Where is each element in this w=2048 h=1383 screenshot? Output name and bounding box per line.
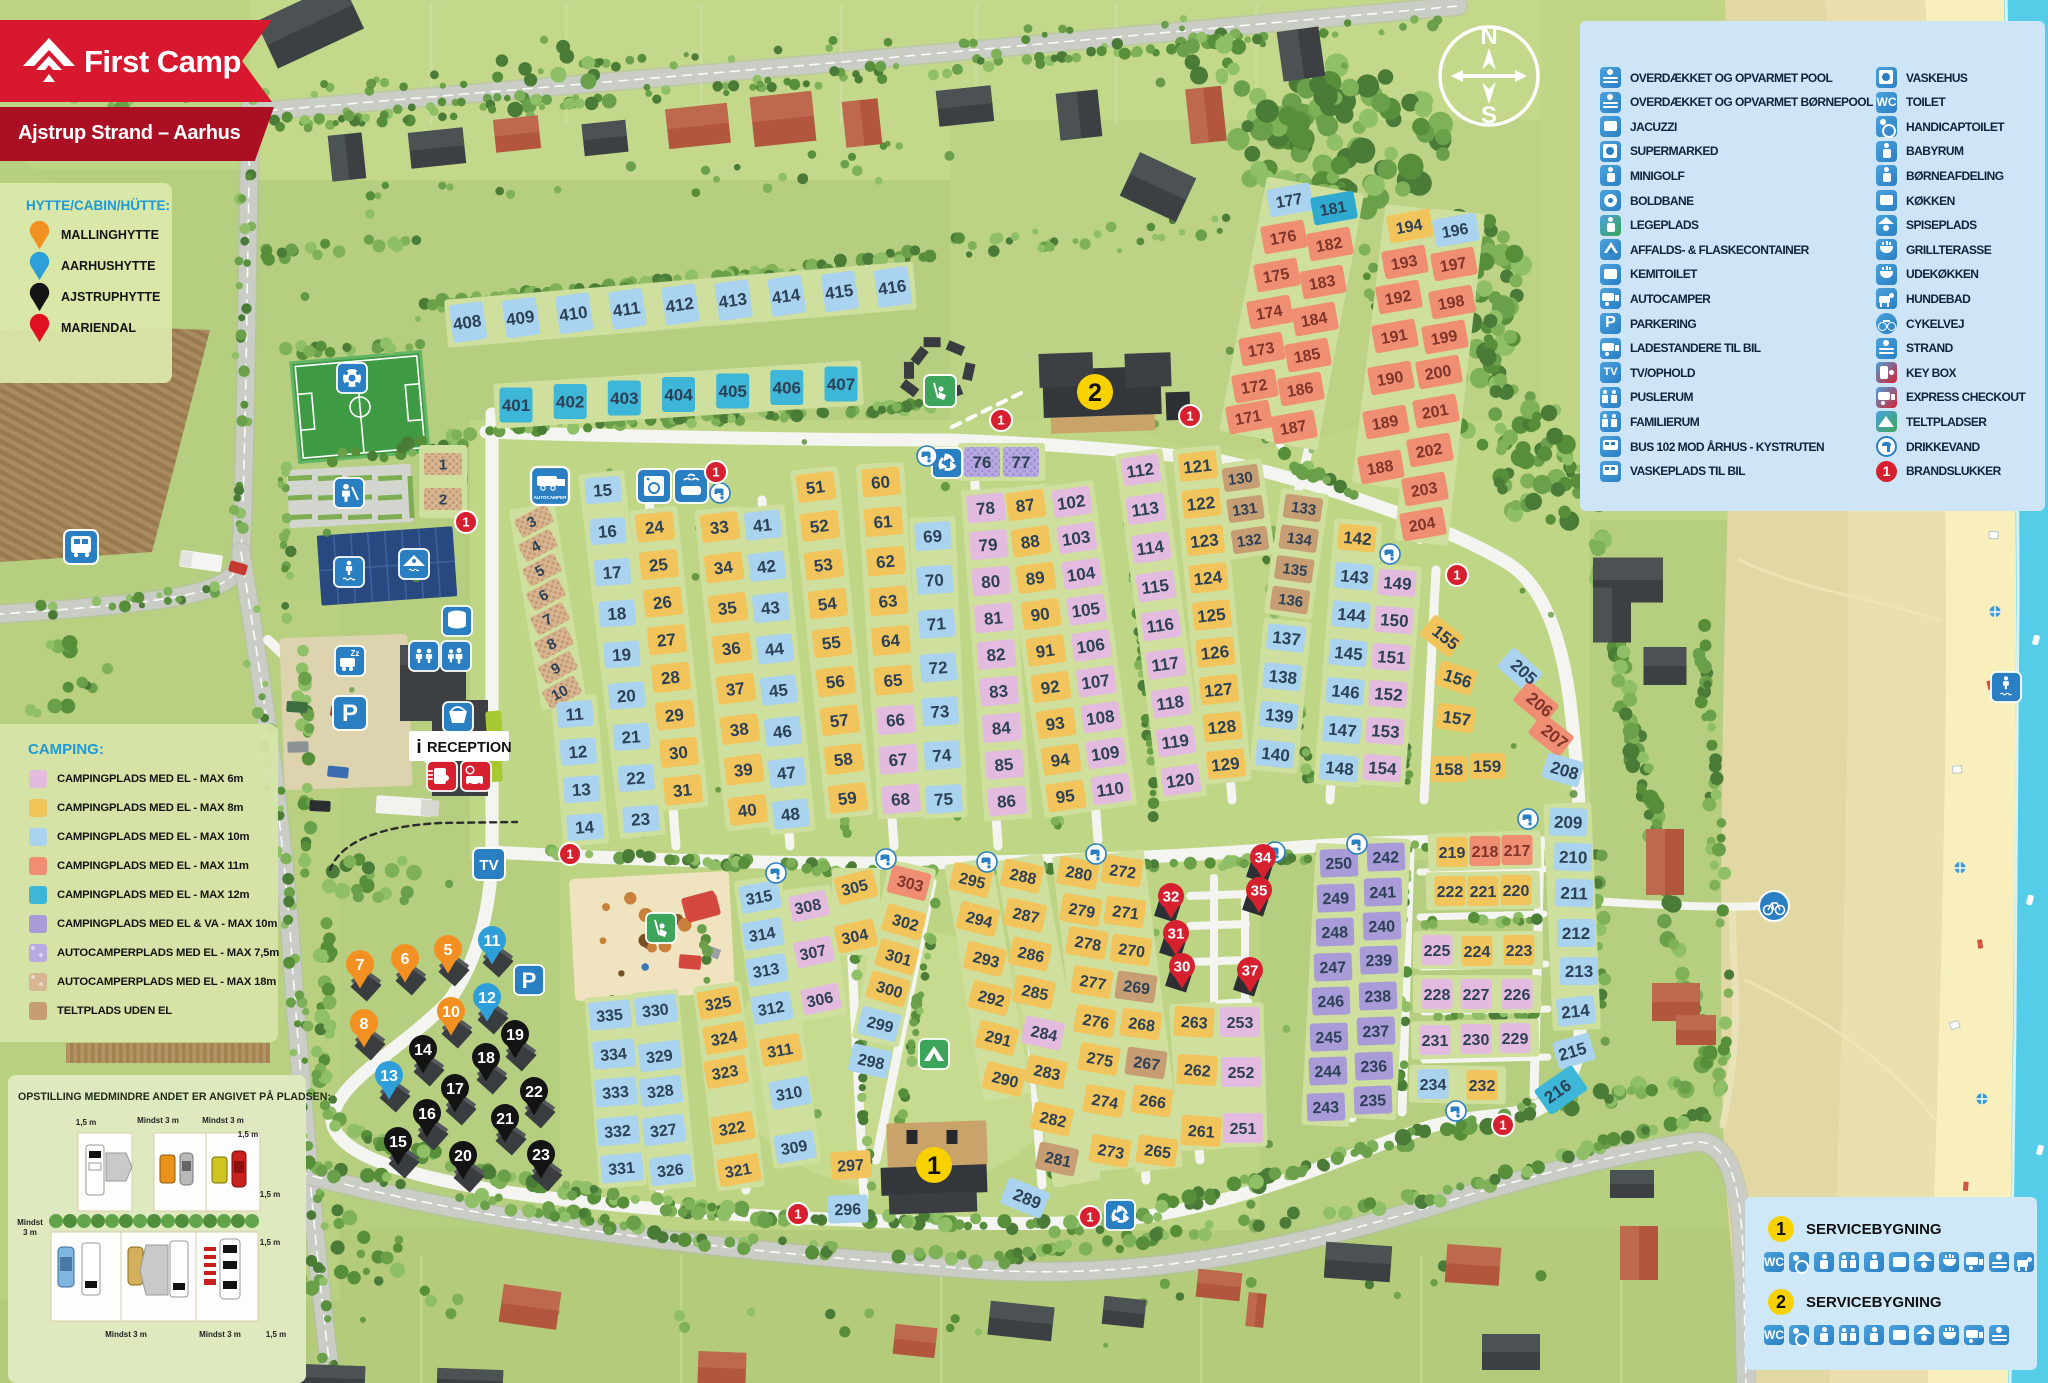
svg-text:52: 52: [809, 516, 830, 537]
svg-text:121: 121: [1182, 456, 1212, 478]
svg-text:137: 137: [1271, 628, 1301, 650]
svg-text:244: 244: [1314, 1063, 1341, 1081]
svg-text:238: 238: [1364, 988, 1391, 1006]
svg-text:413: 413: [717, 289, 748, 312]
svg-text:214: 214: [1560, 1001, 1591, 1023]
svg-text:132: 132: [1236, 531, 1263, 551]
svg-text:234: 234: [1420, 1077, 1447, 1094]
svg-text:Zz: Zz: [351, 649, 360, 658]
svg-text:40: 40: [737, 800, 758, 821]
svg-text:326: 326: [656, 1161, 685, 1181]
svg-text:Mindst 3 m: Mindst 3 m: [137, 1116, 179, 1125]
svg-text:19: 19: [612, 645, 632, 665]
svg-text:74: 74: [932, 746, 953, 766]
svg-text:1: 1: [927, 1152, 941, 1180]
svg-text:53: 53: [813, 555, 834, 576]
svg-text:250: 250: [1325, 855, 1352, 873]
svg-text:76: 76: [973, 453, 992, 472]
svg-text:54: 54: [817, 594, 839, 615]
svg-text:332: 332: [604, 1123, 632, 1142]
svg-text:29: 29: [664, 705, 685, 726]
svg-text:403: 403: [610, 389, 638, 408]
svg-text:261: 261: [1187, 1123, 1215, 1142]
svg-text:253: 253: [1227, 1015, 1254, 1032]
svg-text:59: 59: [837, 788, 858, 809]
svg-text:34: 34: [1255, 849, 1272, 866]
svg-text:1: 1: [794, 1207, 801, 1222]
svg-text:1: 1: [1499, 1118, 1506, 1133]
svg-text:42: 42: [756, 556, 777, 577]
svg-text:212: 212: [1562, 924, 1590, 943]
svg-text:57: 57: [829, 710, 850, 731]
svg-text:114: 114: [1135, 537, 1165, 560]
svg-text:239: 239: [1365, 952, 1392, 970]
svg-text:123: 123: [1189, 530, 1219, 552]
svg-text:116: 116: [1145, 614, 1175, 637]
svg-text:12: 12: [478, 990, 496, 1007]
svg-text:30: 30: [1174, 958, 1191, 975]
svg-text:252: 252: [1228, 1065, 1255, 1082]
svg-text:408: 408: [452, 311, 483, 334]
svg-text:81: 81: [983, 608, 1004, 629]
svg-text:1: 1: [997, 413, 1004, 428]
svg-text:44: 44: [764, 639, 785, 660]
svg-text:146: 146: [1331, 681, 1361, 702]
svg-text:Mindst: Mindst: [17, 1218, 43, 1227]
svg-text:16: 16: [418, 1106, 436, 1123]
svg-text:Mindst 3 m: Mindst 3 m: [199, 1330, 241, 1339]
svg-text:217: 217: [1504, 843, 1531, 860]
svg-text:126: 126: [1200, 642, 1230, 664]
svg-text:82: 82: [986, 645, 1007, 666]
svg-text:224: 224: [1464, 944, 1491, 961]
svg-text:225: 225: [1424, 943, 1451, 960]
svg-text:28: 28: [660, 667, 681, 688]
svg-text:251: 251: [1230, 1121, 1257, 1138]
svg-text:23: 23: [631, 809, 651, 829]
svg-text:240: 240: [1368, 918, 1395, 936]
svg-text:245: 245: [1315, 1029, 1342, 1047]
svg-text:12: 12: [568, 742, 588, 762]
svg-text:87: 87: [1015, 495, 1036, 516]
svg-text:93: 93: [1045, 713, 1066, 734]
svg-text:43: 43: [760, 598, 781, 619]
svg-text:333: 333: [602, 1084, 630, 1103]
svg-text:15: 15: [389, 1134, 407, 1151]
svg-text:1: 1: [439, 456, 447, 473]
svg-text:86: 86: [996, 791, 1017, 812]
svg-text:10: 10: [442, 1004, 460, 1021]
svg-text:415: 415: [824, 281, 855, 304]
svg-text:1: 1: [1453, 568, 1460, 583]
svg-text:AUTOCAMPER: AUTOCAMPER: [534, 495, 568, 500]
svg-text:95: 95: [1055, 786, 1076, 807]
svg-text:67: 67: [888, 750, 909, 771]
svg-text:37: 37: [725, 679, 746, 700]
svg-text:228: 228: [1424, 987, 1451, 1004]
svg-text:34: 34: [713, 557, 735, 578]
svg-text:235: 235: [1359, 1092, 1386, 1110]
svg-text:131: 131: [1231, 500, 1258, 520]
svg-text:33: 33: [709, 517, 730, 538]
svg-text:109: 109: [1090, 742, 1121, 765]
svg-text:21: 21: [496, 1111, 514, 1128]
svg-text:N: N: [1480, 23, 1497, 50]
svg-text:106: 106: [1075, 635, 1106, 658]
svg-text:Mindst 3 m: Mindst 3 m: [105, 1330, 147, 1339]
svg-text:149: 149: [1383, 573, 1413, 594]
svg-text:143: 143: [1340, 566, 1370, 587]
svg-text:407: 407: [827, 375, 855, 394]
svg-text:6: 6: [401, 951, 410, 968]
svg-text:1,5 m: 1,5 m: [266, 1330, 286, 1339]
svg-text:2: 2: [439, 491, 447, 508]
svg-text:75: 75: [934, 789, 954, 809]
svg-text:241: 241: [1369, 884, 1396, 902]
svg-text:18: 18: [607, 604, 627, 624]
svg-text:32: 32: [1163, 888, 1180, 905]
svg-text:209: 209: [1554, 813, 1583, 833]
svg-text:145: 145: [1334, 643, 1364, 664]
svg-text:120: 120: [1165, 769, 1196, 792]
svg-text:401: 401: [502, 396, 530, 415]
svg-text:1,5 m: 1,5 m: [238, 1130, 258, 1139]
svg-text:144: 144: [1337, 605, 1367, 626]
svg-text:66: 66: [885, 710, 906, 731]
svg-text:78: 78: [975, 498, 996, 519]
svg-text:90: 90: [1030, 604, 1051, 625]
svg-text:17: 17: [602, 563, 622, 583]
svg-text:Mindst 3 m: Mindst 3 m: [202, 1116, 244, 1125]
svg-text:327: 327: [649, 1121, 678, 1141]
svg-text:229: 229: [1502, 1031, 1529, 1048]
svg-text:27: 27: [656, 630, 677, 651]
svg-text:16: 16: [597, 522, 617, 542]
svg-text:80: 80: [980, 572, 1001, 593]
svg-text:47: 47: [776, 763, 797, 784]
svg-text:236: 236: [1360, 1058, 1387, 1076]
svg-text:79: 79: [978, 535, 999, 556]
svg-text:405: 405: [719, 382, 747, 401]
svg-text:64: 64: [880, 631, 901, 652]
svg-text:414: 414: [771, 285, 802, 308]
svg-text:142: 142: [1343, 528, 1373, 549]
svg-text:38: 38: [729, 719, 750, 740]
svg-text:247: 247: [1319, 959, 1346, 977]
svg-text:14: 14: [414, 1042, 432, 1059]
svg-text:72: 72: [928, 658, 948, 678]
svg-text:1: 1: [1086, 1210, 1093, 1225]
svg-text:45: 45: [768, 680, 789, 701]
svg-text:24: 24: [644, 517, 665, 538]
svg-text:84: 84: [991, 718, 1012, 739]
svg-text:8: 8: [360, 1016, 369, 1033]
svg-text:112: 112: [1125, 459, 1155, 482]
svg-text:133: 133: [1290, 499, 1317, 519]
svg-text:122: 122: [1186, 493, 1216, 515]
svg-text:69: 69: [923, 526, 943, 546]
svg-text:P: P: [342, 700, 358, 727]
svg-text:1: 1: [712, 465, 719, 480]
svg-text:329: 329: [645, 1047, 674, 1067]
svg-text:P: P: [522, 968, 537, 993]
svg-text:19: 19: [506, 1027, 524, 1044]
svg-text:243: 243: [1312, 1099, 1339, 1117]
svg-text:58: 58: [833, 749, 854, 770]
svg-text:139: 139: [1264, 705, 1294, 727]
svg-text:227: 227: [1463, 987, 1490, 1004]
svg-text:26: 26: [652, 592, 673, 613]
svg-text:416: 416: [877, 276, 908, 299]
svg-text:104: 104: [1066, 563, 1097, 586]
svg-text:402: 402: [556, 393, 584, 412]
svg-text:150: 150: [1380, 610, 1410, 631]
svg-text:232: 232: [1469, 1078, 1496, 1095]
svg-text:129: 129: [1210, 754, 1240, 776]
svg-text:25: 25: [648, 555, 669, 576]
svg-text:138: 138: [1268, 666, 1298, 688]
svg-text:127: 127: [1203, 679, 1233, 701]
svg-text:231: 231: [1422, 1033, 1449, 1050]
svg-text:31: 31: [672, 780, 693, 801]
svg-text:3 m: 3 m: [23, 1228, 37, 1237]
svg-text:83: 83: [988, 681, 1009, 702]
svg-text:89: 89: [1025, 568, 1046, 589]
svg-text:i: i: [416, 737, 421, 758]
svg-text:158: 158: [1435, 760, 1463, 779]
svg-text:1,5 m: 1,5 m: [76, 1118, 96, 1127]
svg-text:77: 77: [1012, 453, 1031, 472]
svg-text:46: 46: [772, 722, 793, 743]
svg-text:157: 157: [1441, 707, 1472, 730]
svg-text:20: 20: [616, 686, 636, 706]
svg-text:55: 55: [821, 633, 842, 654]
svg-text:263: 263: [1180, 1014, 1208, 1033]
svg-text:115: 115: [1140, 576, 1170, 599]
svg-text:21: 21: [621, 727, 641, 747]
svg-text:39: 39: [733, 760, 754, 781]
svg-text:37: 37: [1242, 962, 1259, 979]
svg-text:113: 113: [1130, 498, 1160, 521]
svg-text:128: 128: [1207, 716, 1237, 738]
svg-text:13: 13: [380, 1068, 398, 1085]
svg-text:61: 61: [873, 512, 894, 533]
svg-text:140: 140: [1260, 744, 1290, 766]
svg-text:36: 36: [721, 638, 742, 659]
svg-text:70: 70: [924, 570, 944, 590]
svg-text:159: 159: [1473, 757, 1501, 776]
svg-text:147: 147: [1328, 720, 1358, 741]
svg-text:124: 124: [1193, 567, 1224, 589]
svg-text:411: 411: [612, 298, 642, 321]
svg-text:60: 60: [870, 472, 891, 493]
svg-text:335: 335: [596, 1007, 624, 1026]
svg-text:242: 242: [1372, 849, 1399, 867]
svg-text:23: 23: [532, 1147, 550, 1164]
svg-text:22: 22: [626, 768, 646, 788]
svg-text:65: 65: [883, 670, 904, 691]
svg-text:334: 334: [600, 1046, 628, 1065]
svg-text:22: 22: [525, 1084, 543, 1101]
svg-text:223: 223: [1506, 943, 1533, 960]
svg-text:218: 218: [1472, 844, 1499, 861]
svg-text:91: 91: [1035, 640, 1056, 661]
svg-text:62: 62: [875, 552, 896, 573]
svg-text:41: 41: [752, 515, 773, 536]
svg-text:134: 134: [1286, 529, 1314, 549]
svg-text:107: 107: [1080, 671, 1111, 694]
svg-text:262: 262: [1183, 1062, 1211, 1081]
svg-text:296: 296: [834, 1201, 861, 1219]
svg-text:20: 20: [454, 1148, 472, 1165]
svg-text:221: 221: [1470, 884, 1497, 901]
svg-text:31: 31: [1168, 925, 1185, 942]
svg-text:1: 1: [462, 515, 469, 530]
svg-text:7: 7: [356, 957, 365, 974]
svg-text:248: 248: [1321, 924, 1348, 942]
svg-text:222: 222: [1437, 884, 1464, 901]
svg-text:297: 297: [837, 1157, 865, 1176]
svg-text:220: 220: [1503, 883, 1530, 900]
svg-text:92: 92: [1040, 677, 1061, 698]
svg-text:108: 108: [1085, 707, 1116, 730]
svg-text:410: 410: [558, 303, 589, 326]
svg-text:226: 226: [1504, 987, 1531, 1004]
svg-text:118: 118: [1155, 692, 1185, 715]
svg-text:154: 154: [1368, 758, 1398, 779]
svg-text:152: 152: [1374, 684, 1404, 705]
svg-text:328: 328: [646, 1082, 675, 1102]
svg-text:153: 153: [1371, 721, 1401, 742]
svg-text:211: 211: [1560, 884, 1588, 904]
svg-text:TV: TV: [479, 857, 498, 874]
svg-text:18: 18: [477, 1050, 495, 1067]
svg-text:230: 230: [1463, 1032, 1490, 1049]
svg-text:117: 117: [1150, 653, 1180, 676]
svg-text:237: 237: [1362, 1023, 1389, 1041]
svg-text:210: 210: [1559, 848, 1588, 868]
svg-text:102: 102: [1056, 491, 1087, 514]
svg-text:35: 35: [717, 598, 738, 619]
svg-text:1,5 m: 1,5 m: [260, 1190, 280, 1199]
svg-text:249: 249: [1322, 890, 1349, 908]
svg-text:1,5 m: 1,5 m: [260, 1238, 280, 1247]
svg-text:1: 1: [1186, 409, 1193, 424]
svg-text:51: 51: [805, 477, 826, 498]
svg-text:246: 246: [1317, 993, 1344, 1011]
svg-text:85: 85: [994, 755, 1015, 776]
svg-text:412: 412: [664, 294, 695, 317]
svg-text:119: 119: [1160, 731, 1190, 754]
svg-text:94: 94: [1050, 749, 1072, 771]
svg-text:404: 404: [664, 386, 693, 405]
svg-text:213: 213: [1565, 962, 1593, 981]
svg-text:105: 105: [1070, 599, 1101, 622]
svg-text:11: 11: [484, 933, 501, 950]
svg-text:330: 330: [641, 1001, 670, 1021]
svg-text:56: 56: [825, 671, 846, 692]
svg-text:RECEPTION: RECEPTION: [427, 740, 512, 756]
svg-text:2: 2: [1088, 379, 1102, 407]
svg-text:409: 409: [505, 307, 536, 330]
svg-text:110: 110: [1095, 778, 1125, 801]
svg-text:71: 71: [926, 614, 946, 634]
svg-text:148: 148: [1325, 758, 1355, 779]
svg-text:219: 219: [1439, 845, 1466, 862]
svg-text:48: 48: [780, 804, 801, 825]
svg-text:406: 406: [773, 379, 801, 398]
svg-text:130: 130: [1227, 469, 1254, 489]
svg-text:73: 73: [930, 702, 950, 722]
svg-text:63: 63: [878, 591, 899, 612]
svg-text:11: 11: [565, 705, 584, 725]
svg-text:5: 5: [444, 942, 453, 959]
svg-text:151: 151: [1377, 647, 1407, 668]
svg-text:331: 331: [608, 1160, 636, 1179]
svg-text:125: 125: [1196, 605, 1226, 627]
svg-text:68: 68: [890, 789, 911, 810]
svg-text:88: 88: [1020, 531, 1041, 552]
svg-text:30: 30: [668, 743, 689, 764]
svg-text:S: S: [1481, 102, 1497, 129]
svg-text:14: 14: [575, 817, 596, 837]
svg-text:17: 17: [446, 1081, 464, 1098]
svg-text:136: 136: [1277, 591, 1304, 611]
svg-text:13: 13: [571, 780, 591, 800]
svg-text:35: 35: [1251, 882, 1268, 899]
svg-text:135: 135: [1281, 560, 1308, 580]
svg-text:103: 103: [1061, 527, 1092, 550]
svg-text:15: 15: [593, 480, 613, 500]
svg-text:1: 1: [566, 847, 573, 862]
